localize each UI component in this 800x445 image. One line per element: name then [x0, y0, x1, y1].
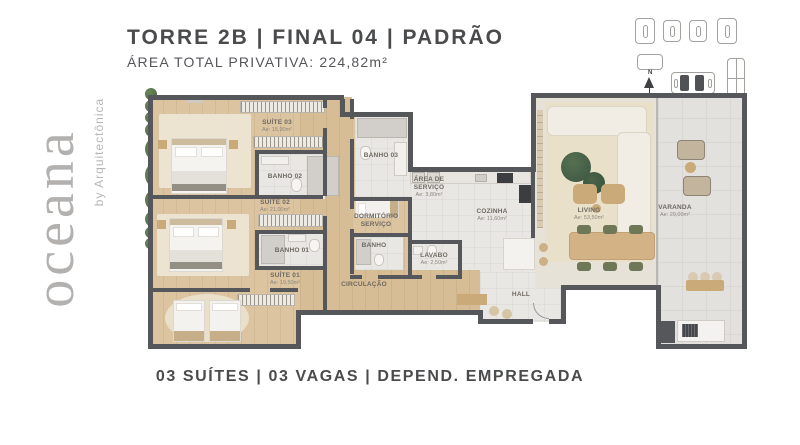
room-name: SUÍTE 03 [262, 119, 292, 127]
keyplan-tower-icon [717, 18, 737, 44]
wall-segment [148, 95, 344, 100]
room-label-dormitorio-servico: DORMITÓRIO SERVIÇO [354, 213, 398, 229]
wall-segment [323, 99, 327, 108]
room-name: CIRCULAÇÃO [341, 281, 387, 289]
wall-segment [656, 287, 661, 344]
glass-partition [656, 94, 658, 287]
pouf [489, 306, 499, 316]
wall-segment [531, 93, 747, 98]
console-table [457, 294, 487, 305]
room-area: Ae: 19,50m² [270, 280, 300, 287]
room-area: Ae: 53,50m² [574, 215, 604, 222]
wall-segment [561, 285, 661, 290]
wall-segment [458, 240, 462, 279]
bathroom-counter [261, 156, 289, 165]
nightstand [229, 140, 238, 149]
wall-segment [255, 230, 327, 234]
room-name: COZINHA [476, 208, 507, 216]
room-name: LIVING [574, 207, 604, 215]
keyplan-core-icon [674, 79, 678, 88]
room-area: Ae: 3,80m² [412, 192, 446, 199]
keyplan-tower-icon [635, 18, 655, 44]
page-title: TORRE 2B | FINAL 04 | PADRÃO [127, 26, 504, 50]
room-label-banho02: BANHO 02 [268, 173, 302, 181]
wall-segment [323, 128, 327, 196]
room-label-banho-servico: BANHO [362, 242, 387, 250]
room-label-cozinha: COZINHAAe: 11,60m² [476, 208, 507, 222]
dining-chair [577, 225, 591, 234]
dining-chair [629, 262, 643, 271]
wall-segment [408, 197, 412, 279]
shelf-unit [537, 110, 543, 228]
room-name: DORMITÓRIO SERVIÇO [354, 213, 398, 229]
bar-table [686, 280, 724, 291]
wall-segment [408, 240, 462, 244]
suite02-wardrobe [258, 214, 323, 227]
dining-chair [603, 262, 617, 271]
headboard [172, 139, 226, 145]
shower [357, 118, 407, 138]
wall-segment [255, 150, 327, 154]
pillow [173, 227, 194, 237]
suite01-bed [173, 300, 205, 342]
nightstand [227, 220, 236, 229]
room-label-hall: HALL [512, 291, 530, 299]
headboard [170, 219, 222, 225]
brand-byline: by Arquitectônica [92, 98, 106, 206]
kitchen-sink [475, 174, 487, 182]
room-label-suite02: SUÍTE 02Ae: 21,00m² [260, 199, 290, 213]
suite03-bed [171, 138, 227, 194]
wall-segment [350, 99, 354, 119]
armchair [573, 184, 597, 204]
bed-throw [174, 331, 204, 341]
stool [539, 243, 548, 252]
room-label-banho03: BANHO 03 [364, 152, 398, 160]
room-area: Ae: 21,00m² [260, 207, 290, 214]
wall-segment [270, 288, 298, 292]
wall-segment [255, 150, 259, 199]
room-label-varanda: VARANDAAe: 29,00m² [658, 204, 691, 218]
suite02-bed [169, 218, 223, 272]
wall-segment [656, 344, 747, 349]
keyplan-tower-icon [689, 20, 707, 42]
toilet [374, 254, 384, 266]
wall-segment [350, 233, 412, 237]
room-name: ÁREA DE SERVIÇO [412, 176, 446, 192]
room-name: LAVABO [420, 252, 448, 260]
room-label-circulacao: CIRCULAÇÃO [341, 281, 387, 289]
nightstand [158, 140, 167, 149]
pouf [502, 309, 512, 319]
lounge-chair [677, 140, 705, 160]
room-label-suite01: SUÍTE 01Ae: 19,50m² [270, 272, 300, 286]
keyplan-core-icon [670, 26, 675, 37]
pillow [201, 147, 223, 157]
grill-icon [682, 324, 698, 337]
wall-segment [148, 344, 301, 349]
room-area: Ae: 11,60m² [476, 216, 507, 223]
brand-logo: oceana [23, 128, 87, 307]
wall-segment [255, 230, 259, 270]
keyplan-lobby-icon [637, 54, 663, 70]
pillow [175, 147, 197, 157]
bathroom-counter [288, 234, 306, 242]
room-area: Ae: 2,50m² [420, 260, 448, 267]
wall-segment [150, 288, 250, 292]
kitchen-island [503, 238, 535, 270]
wall-segment [408, 112, 413, 171]
floor-varanda [658, 94, 745, 347]
wall-segment [478, 319, 533, 324]
room-area: Ae: 15,90m² [262, 127, 292, 134]
room-name: VARANDA [658, 204, 691, 212]
keyplan-tower-icon [663, 20, 681, 42]
pillow [176, 303, 202, 311]
bed-throw [210, 331, 240, 341]
room-name: BANHO 01 [275, 247, 309, 255]
bed-throw [170, 262, 222, 269]
floor-plan: SUÍTE 03Ae: 15,90m²BANHO 02BANHO 03SUÍTE… [145, 88, 751, 354]
bed-throw [172, 184, 226, 191]
wall-segment [350, 197, 412, 201]
room-name: BANHO 03 [364, 152, 398, 160]
keyplan: N [635, 14, 749, 98]
pillow [212, 303, 238, 311]
room-name: SUÍTE 01 [270, 272, 300, 280]
dining-chair [629, 225, 643, 234]
wall-segment [378, 275, 422, 279]
stool [539, 257, 548, 266]
wall-segment [148, 95, 153, 349]
room-label-banho01: BANHO 01 [275, 247, 309, 255]
suite01-wardrobe [237, 294, 295, 306]
keyplan-core-icon [643, 25, 648, 38]
dining-chair [603, 225, 617, 234]
wall-segment [531, 172, 535, 238]
toilet [309, 239, 320, 252]
keyplan-core-icon [696, 26, 701, 37]
room-name: BANHO 02 [268, 173, 302, 181]
dining-chair [577, 262, 591, 271]
nightstand [157, 220, 166, 229]
suite03-wardrobe [240, 101, 325, 113]
room-name: SUÍTE 02 [260, 199, 290, 207]
cooktop-icon [497, 173, 513, 183]
suite03-closet [253, 136, 325, 148]
wall-segment [742, 93, 747, 349]
unit-summary: 03 SUÍTES | 03 VAGAS | DEPEND. EMPREGADA [150, 368, 590, 386]
keyplan-north-label: N [648, 70, 652, 76]
armchair [601, 184, 625, 204]
room-label-suite03: SUÍTE 03Ae: 15,90m² [262, 119, 292, 133]
side-table [685, 162, 696, 173]
room-name: HALL [512, 291, 530, 299]
oven-icon [519, 185, 531, 203]
wall-segment [255, 266, 327, 270]
wall-segment [549, 319, 565, 324]
lounge-chair [683, 176, 711, 196]
room-label-area-servico: ÁREA DE SERVIÇOAe: 3,80m² [412, 176, 446, 198]
wall-segment [150, 195, 323, 199]
dining-table [569, 232, 655, 260]
room-label-living: LIVINGAe: 53,50m² [574, 207, 604, 221]
keyplan-core-icon [725, 25, 730, 38]
wall-segment [436, 275, 462, 279]
total-area-subtitle: ÁREA TOTAL PRIVATIVA: 224,82m² [127, 54, 388, 70]
suite01-bed [209, 300, 241, 342]
wall-segment [531, 93, 536, 172]
wall-segment [350, 275, 362, 279]
pillow [198, 227, 219, 237]
room-label-lavabo: LAVABOAe: 2,50m² [420, 252, 448, 266]
room-area: Ae: 29,00m² [658, 212, 691, 219]
room-name: BANHO [362, 242, 387, 250]
wall-segment [408, 167, 536, 172]
wall-segment [296, 310, 483, 315]
keyplan-core-icon [708, 79, 712, 88]
